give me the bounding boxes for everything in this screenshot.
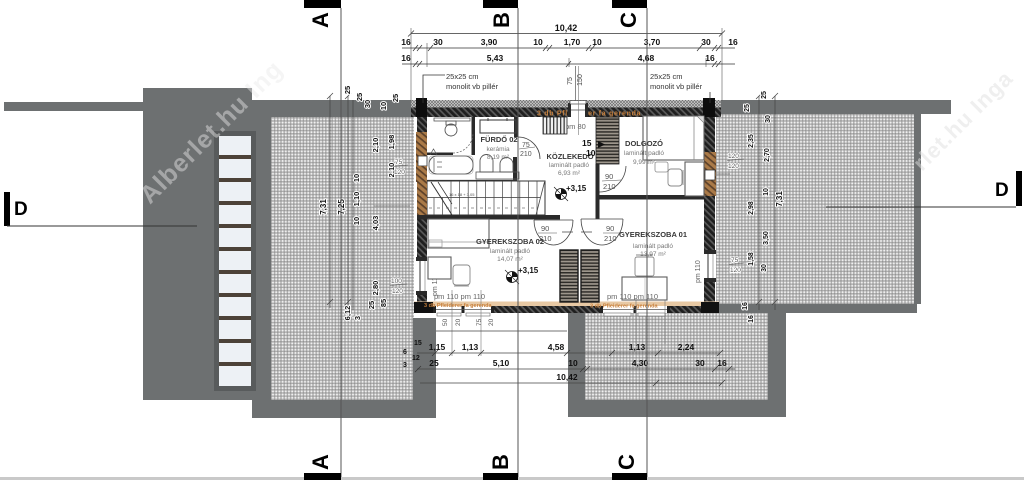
svg-text:10: 10 [352,174,361,182]
svg-text:5,43: 5,43 [487,53,504,63]
svg-text:90: 90 [606,224,614,233]
svg-text:+3,15: +3,15 [566,184,587,193]
svg-text:120: 120 [394,169,405,176]
svg-text:16: 16 [728,37,738,47]
svg-text:D: D [14,199,28,220]
svg-text:30: 30 [363,100,372,108]
svg-text:3,90: 3,90 [481,37,498,47]
svg-text:30: 30 [701,37,711,47]
svg-text:10: 10 [568,358,578,368]
svg-text:25x25 cm: 25x25 cm [650,72,683,81]
svg-text:3 db Pfleiderer fa gerenda: 3 db Pfleiderer fa gerenda [590,304,658,310]
svg-text:3 db Pfleiderer fa gerenda: 3 db Pfleiderer fa gerenda [424,303,492,309]
svg-text:4,58: 4,58 [548,342,565,352]
svg-text:120: 120 [392,288,403,295]
svg-text:16: 16 [705,53,715,63]
svg-text:25: 25 [367,301,376,309]
svg-text:laminált padló: laminált padló [549,162,589,169]
svg-text:monolit vb pillér: monolit vb pillér [446,82,499,91]
svg-text:10: 10 [379,102,388,110]
svg-text:7,31: 7,31 [319,199,328,215]
svg-text:8,19 m²: 8,19 m² [487,154,510,161]
svg-text:pm 110 pm 110: pm 110 pm 110 [434,292,485,301]
svg-text:120: 120 [728,163,739,170]
svg-text:10,42: 10,42 [555,23,578,33]
svg-text:10,42: 10,42 [556,372,578,382]
svg-text:120: 120 [730,267,741,274]
svg-text:1,70: 1,70 [564,37,581,47]
svg-text:20: 20 [488,318,495,326]
svg-text:A: A [308,454,333,470]
svg-text:16: 16 [748,315,755,323]
svg-text:4,30: 4,30 [632,358,649,368]
svg-text:6,93 m²: 6,93 m² [558,170,581,177]
svg-text:laminált padló: laminált padló [624,150,664,157]
svg-text:2,80: 2,80 [371,281,380,296]
svg-text:30: 30 [433,37,443,47]
svg-text:2,98: 2,98 [748,201,755,215]
svg-text:120: 120 [728,153,739,160]
svg-text:15: 15 [414,340,422,347]
svg-text:10: 10 [763,188,770,196]
svg-text:14,07 m²: 14,07 m² [497,256,523,263]
svg-text:75: 75 [731,257,739,264]
svg-text:25: 25 [391,94,400,102]
svg-text:1,15: 1,15 [429,342,446,352]
svg-text:7,31: 7,31 [775,191,784,207]
svg-text:+3,15: +3,15 [518,266,539,275]
svg-text:75: 75 [395,159,403,166]
svg-text:FÜRDŐ 02: FÜRDŐ 02 [480,135,517,144]
svg-text:4,03: 4,03 [371,216,380,231]
svg-text:2,24: 2,24 [678,342,695,352]
svg-text:pm 110: pm 110 [695,260,702,283]
svg-text:6: 6 [403,349,407,356]
svg-text:1,58: 1,58 [748,252,755,266]
svg-text:210: 210 [604,234,617,243]
svg-text:3,50: 3,50 [763,231,770,245]
svg-text:75: 75 [476,318,483,326]
svg-text:GYEREKSZOBA 02: GYEREKSZOBA 02 [476,237,544,246]
svg-text:75: 75 [567,77,574,85]
svg-text:10: 10 [592,37,602,47]
svg-text:13,97 m²: 13,97 m² [640,251,666,258]
svg-text:25: 25 [343,86,352,94]
svg-text:DOLGOZÓ: DOLGOZÓ [625,139,663,148]
svg-text:pm 110 pm 110: pm 110 pm 110 [607,292,658,301]
svg-text:1,98: 1,98 [387,135,396,150]
svg-text:25: 25 [761,91,768,99]
svg-text:12: 12 [412,355,420,362]
svg-text:6,12: 6,12 [343,306,352,321]
svg-text:10: 10 [352,217,361,225]
svg-text:4,68: 4,68 [638,53,655,63]
svg-text:16 x 18 + 3,05: 16 x 18 + 3,05 [449,192,475,197]
svg-text:2,70: 2,70 [764,148,771,162]
svg-text:9,99 m²: 9,99 m² [633,159,656,166]
svg-text:B: B [488,454,513,470]
svg-text:10: 10 [586,148,596,158]
svg-text:210: 210 [603,182,616,191]
svg-text:1,13: 1,13 [462,342,479,352]
svg-text:1,10: 1,10 [352,192,361,207]
svg-text:100: 100 [391,278,402,285]
svg-text:3: 3 [403,362,407,369]
svg-text:25: 25 [744,104,751,112]
svg-text:85: 85 [379,299,388,307]
svg-text:20: 20 [455,318,462,326]
svg-text:50: 50 [442,318,449,326]
svg-text:kerámia: kerámia [486,146,510,153]
svg-text:2,35: 2,35 [748,134,755,148]
svg-text:3: 3 [353,316,362,320]
svg-text:25: 25 [429,358,439,368]
svg-text:3,70: 3,70 [644,37,661,47]
svg-text:30: 30 [761,264,768,272]
svg-text:C: C [616,12,641,28]
svg-text:30: 30 [695,358,705,368]
svg-text:monolit vb pillér: monolit vb pillér [650,82,703,91]
svg-text:210: 210 [520,151,532,158]
svg-text:16: 16 [742,302,749,310]
svg-text:16: 16 [717,358,727,368]
svg-text:10: 10 [533,37,543,47]
svg-text:laminált padló: laminált padló [633,243,673,250]
svg-text:30: 30 [765,115,772,123]
svg-text:2,10: 2,10 [371,138,380,153]
svg-text:16: 16 [401,53,411,63]
svg-text:C: C [614,454,639,470]
svg-text:B: B [489,12,514,28]
svg-text:15: 15 [582,138,592,148]
svg-text:D: D [995,180,1009,201]
svg-text:90: 90 [541,224,549,233]
svg-text:90: 90 [605,172,613,181]
svg-text:25x25 cm: 25x25 cm [446,72,479,81]
svg-text:150: 150 [577,74,584,86]
svg-text:16: 16 [401,37,411,47]
svg-text:laminált padló: laminált padló [490,248,530,255]
svg-text:1,13: 1,13 [629,342,646,352]
svg-text:pm 80: pm 80 [565,122,586,131]
svg-text:A: A [308,12,333,28]
svg-text:GYEREKSZOBA 01: GYEREKSZOBA 01 [619,230,687,239]
svg-text:5,10: 5,10 [493,358,510,368]
svg-text:3 db Pfleiderer fa gerenda: 3 db Pfleiderer fa gerenda [537,111,641,118]
